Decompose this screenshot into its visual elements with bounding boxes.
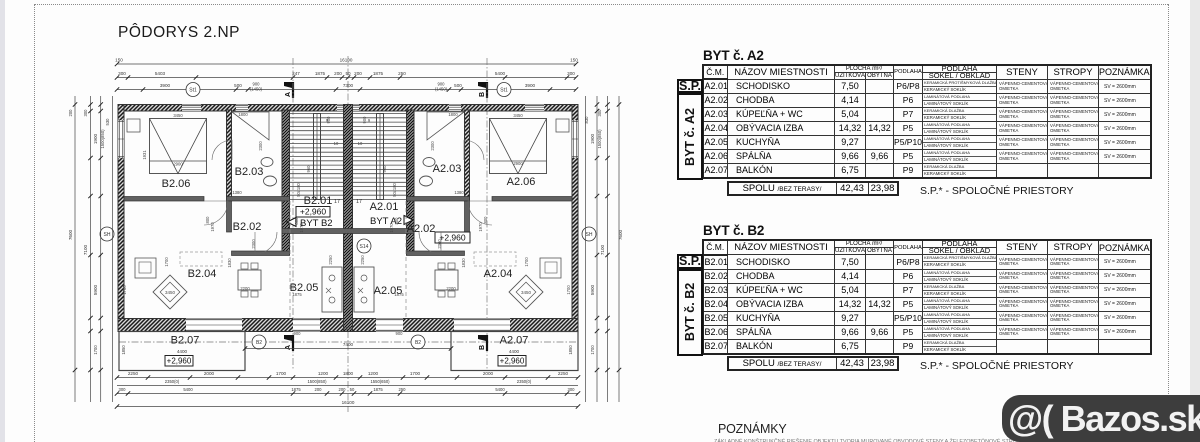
svg-text:960: 960 — [306, 165, 311, 173]
svg-text:4400: 4400 — [177, 349, 188, 354]
svg-text:50x180: 50x180 — [392, 182, 397, 196]
svg-text:1875: 1875 — [292, 292, 302, 297]
svg-text:A2.06: A2.06 — [507, 176, 536, 188]
svg-text:200: 200 — [339, 387, 347, 392]
svg-text:+2,960: +2,960 — [167, 357, 192, 366]
svg-text:A: A — [285, 92, 292, 97]
svg-text:5400: 5400 — [495, 71, 506, 76]
svg-text:1875: 1875 — [343, 326, 353, 331]
svg-text:2200: 2200 — [240, 286, 250, 291]
svg-text:1875: 1875 — [394, 292, 404, 297]
svg-text:1900: 1900 — [590, 133, 595, 144]
svg-text:B2.07: B2.07 — [171, 335, 200, 347]
svg-text:2250: 2250 — [558, 371, 569, 376]
svg-text:B: B — [479, 92, 486, 97]
svg-text:1500(850): 1500(850) — [307, 379, 327, 384]
svg-text:2300: 2300 — [437, 239, 442, 249]
svg-text:800: 800 — [394, 217, 399, 225]
svg-text:1970: 1970 — [389, 223, 394, 233]
svg-text:+2,960: +2,960 — [500, 357, 525, 366]
svg-text:2350(0): 2350(0) — [165, 379, 180, 384]
svg-text:2000: 2000 — [483, 371, 494, 376]
svg-text:B2: B2 — [415, 340, 421, 346]
svg-text:A: A — [285, 345, 292, 350]
svg-text:800: 800 — [483, 216, 488, 224]
svg-text:5900: 5900 — [93, 284, 98, 295]
svg-text:1970: 1970 — [299, 223, 304, 233]
svg-text:300: 300 — [119, 387, 127, 392]
svg-text:2900: 2900 — [173, 162, 183, 167]
svg-text:A2.02: A2.02 — [407, 223, 436, 235]
svg-text:SH: SH — [586, 232, 593, 238]
svg-text:500: 500 — [454, 83, 462, 88]
svg-text:2000: 2000 — [204, 371, 215, 376]
svg-text:SH: SH — [104, 232, 111, 238]
svg-text:1700: 1700 — [590, 345, 595, 355]
svg-text:16100: 16100 — [340, 58, 353, 63]
svg-text:5900: 5900 — [590, 284, 595, 295]
svg-text:200: 200 — [315, 387, 323, 392]
svg-text:2200: 2200 — [446, 286, 456, 291]
svg-text:1700: 1700 — [164, 257, 169, 267]
svg-text:247: 247 — [292, 71, 300, 76]
svg-text:7600: 7600 — [618, 229, 623, 240]
svg-text:A2.01: A2.01 — [370, 201, 399, 213]
svg-text:+2,960: +2,960 — [300, 207, 327, 217]
svg-text:1500(850): 1500(850) — [100, 129, 105, 149]
svg-text:900: 900 — [294, 331, 302, 336]
svg-text:830: 830 — [584, 116, 589, 124]
svg-text:1700: 1700 — [122, 285, 127, 295]
svg-text:50: 50 — [350, 387, 355, 392]
svg-text:300: 300 — [567, 71, 575, 76]
svg-text:300: 300 — [568, 387, 576, 392]
svg-text:1875: 1875 — [291, 387, 301, 392]
svg-text:2250: 2250 — [128, 371, 139, 376]
svg-text:1850: 1850 — [121, 345, 126, 355]
svg-text:A2.07: A2.07 — [500, 335, 529, 347]
svg-text:B2.06: B2.06 — [162, 178, 191, 190]
svg-text:1830: 1830 — [227, 258, 232, 268]
svg-text:16100: 16100 — [342, 400, 355, 405]
svg-text:3450: 3450 — [513, 113, 523, 118]
svg-text:1700: 1700 — [276, 371, 287, 376]
svg-text:1850: 1850 — [568, 345, 573, 355]
svg-text:7100: 7100 — [83, 244, 88, 255]
svg-text:2250: 2250 — [328, 255, 333, 265]
svg-text:1931: 1931 — [142, 150, 147, 160]
svg-text:2900: 2900 — [513, 161, 523, 166]
svg-text:1800: 1800 — [238, 112, 248, 117]
svg-text:3450: 3450 — [165, 290, 176, 295]
svg-text:960: 960 — [382, 165, 387, 173]
svg-text:250: 250 — [398, 71, 406, 76]
svg-text:7600: 7600 — [68, 229, 73, 240]
svg-text:5403: 5403 — [155, 71, 166, 76]
svg-text:B2: B2 — [256, 340, 262, 346]
svg-text:5400: 5400 — [183, 387, 193, 392]
svg-text:1550(650): 1550(650) — [370, 379, 390, 384]
svg-text:2250: 2250 — [360, 255, 365, 265]
svg-text:1900: 1900 — [93, 133, 98, 144]
svg-text:2350(0): 2350(0) — [517, 379, 532, 384]
svg-text:2300: 2300 — [258, 141, 263, 151]
svg-text:4400: 4400 — [509, 349, 520, 354]
svg-text:1970: 1970 — [478, 222, 483, 232]
svg-text:+2,960: +2,960 — [439, 233, 466, 243]
svg-text:3450: 3450 — [521, 290, 532, 295]
svg-text:(1450): (1450) — [250, 87, 263, 92]
svg-text:1200: 1200 — [368, 371, 379, 376]
svg-text:1800: 1800 — [448, 112, 458, 117]
svg-text:B: B — [479, 345, 486, 350]
svg-text:10: 10 — [334, 141, 339, 146]
svg-text:10: 10 — [358, 141, 363, 146]
svg-text:S14: S14 — [360, 244, 369, 250]
svg-text:2300: 2300 — [251, 239, 256, 249]
svg-text:5400: 5400 — [495, 387, 505, 392]
svg-text:BYT B2: BYT B2 — [300, 218, 333, 229]
svg-text:St1: St1 — [189, 88, 197, 94]
svg-text:1500(850): 1500(850) — [597, 129, 602, 149]
svg-text:1875: 1875 — [315, 71, 326, 76]
svg-text:1700: 1700 — [93, 345, 98, 355]
svg-text:7400: 7400 — [343, 342, 354, 347]
svg-text:1700: 1700 — [524, 257, 529, 267]
svg-text:3900: 3900 — [160, 83, 171, 88]
svg-text:1800: 1800 — [343, 371, 354, 376]
svg-text:PÔDORYS 2.NP: PÔDORYS 2.NP — [118, 24, 240, 41]
svg-text:300: 300 — [118, 71, 126, 76]
svg-text:17: 17 — [334, 199, 340, 205]
svg-text:3900: 3900 — [525, 83, 536, 88]
svg-text:St1: St1 — [500, 88, 508, 94]
svg-text:200: 200 — [334, 71, 342, 76]
svg-text:1875: 1875 — [373, 71, 384, 76]
svg-text:B2.03: B2.03 — [235, 166, 264, 178]
svg-text:1200: 1200 — [318, 371, 329, 376]
svg-text:150: 150 — [115, 58, 123, 63]
svg-text:B2.01: B2.01 — [304, 195, 333, 207]
svg-text:A2.04: A2.04 — [484, 268, 513, 280]
svg-text:900: 900 — [396, 331, 404, 336]
svg-text:17: 17 — [356, 199, 362, 205]
svg-text:1830: 1830 — [461, 258, 466, 268]
svg-text:200: 200 — [354, 71, 362, 76]
svg-text:B2.04: B2.04 — [188, 268, 217, 280]
svg-text:150: 150 — [570, 58, 578, 63]
svg-text:(1450): (1450) — [435, 87, 448, 92]
svg-text:1380: 1380 — [454, 190, 464, 195]
svg-text:3450: 3450 — [173, 113, 183, 118]
svg-text:A2.03: A2.03 — [433, 163, 462, 175]
svg-text:500: 500 — [234, 83, 242, 88]
svg-text:7100: 7100 — [600, 244, 605, 255]
svg-text:1970: 1970 — [210, 222, 215, 232]
svg-text:530: 530 — [105, 118, 110, 126]
svg-text:2300: 2300 — [430, 141, 435, 151]
svg-text:1700: 1700 — [410, 371, 421, 376]
svg-text:1380: 1380 — [232, 190, 242, 195]
svg-text:1875: 1875 — [373, 387, 383, 392]
svg-text:50x180: 50x180 — [296, 182, 301, 196]
svg-text:900: 900 — [362, 116, 367, 124]
svg-text:200: 200 — [68, 109, 73, 117]
svg-text:B2.02: B2.02 — [233, 221, 262, 233]
svg-text:1700: 1700 — [566, 285, 571, 295]
svg-text:300: 300 — [597, 109, 602, 117]
svg-text:250: 250 — [399, 387, 407, 392]
svg-text:300: 300 — [83, 109, 88, 117]
